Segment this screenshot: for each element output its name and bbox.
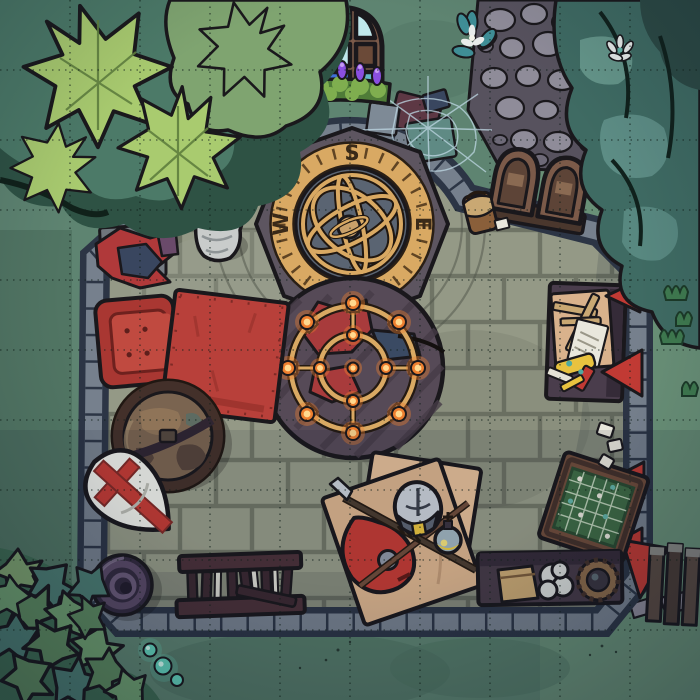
bottom-shade: [0, 430, 700, 700]
map-canvas: S E N W: [0, 0, 700, 700]
battle-map: S E N W: [0, 0, 700, 700]
